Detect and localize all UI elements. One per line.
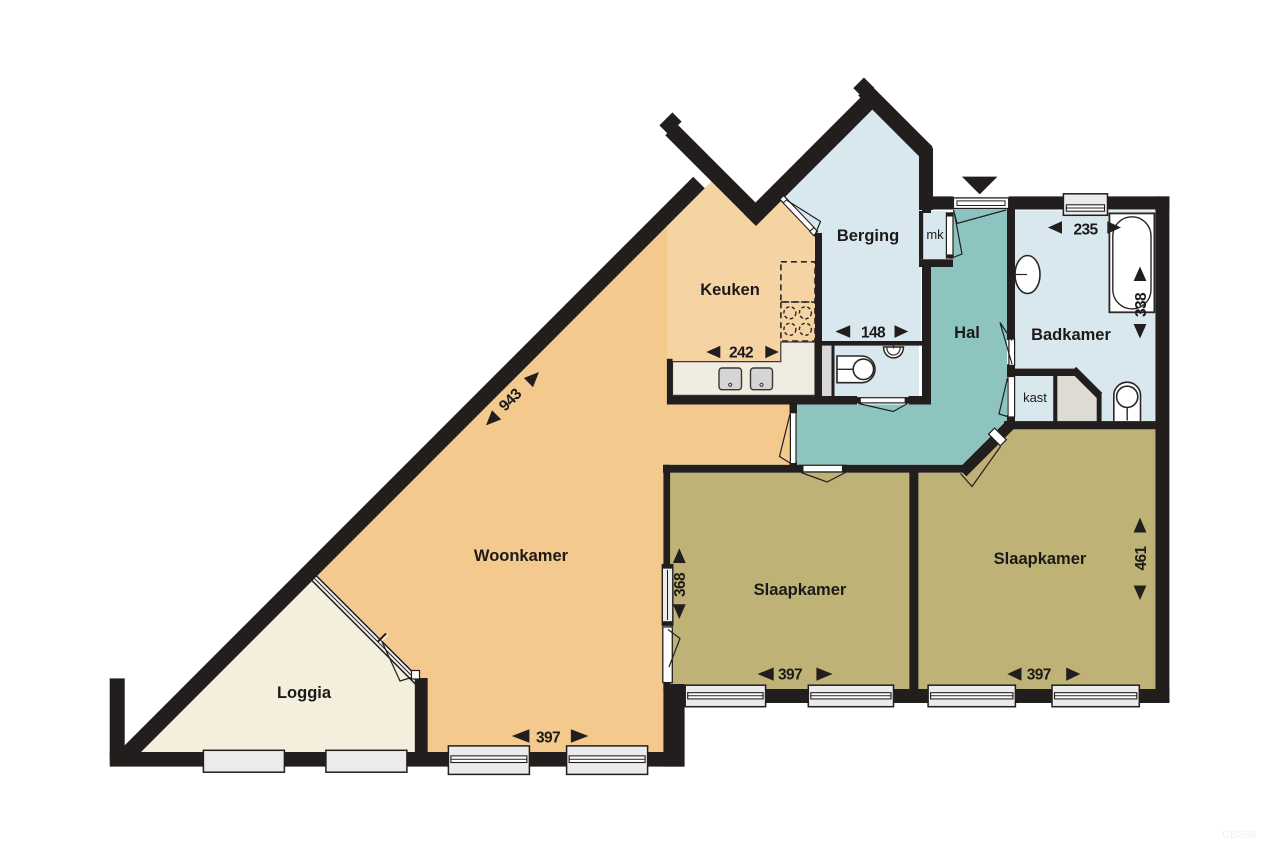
svg-text:Woonkamer: Woonkamer [474,547,569,565]
svg-text:Hal: Hal [954,324,980,342]
svg-text:Keuken: Keuken [700,281,760,299]
svg-text:CB398: CB398 [1222,829,1256,841]
svg-text:461: 461 [1133,545,1150,570]
svg-text:397: 397 [536,730,560,747]
svg-text:338: 338 [1133,292,1150,317]
svg-text:Berging: Berging [837,227,899,245]
svg-text:397: 397 [778,667,802,684]
svg-text:Badkamer: Badkamer [1031,326,1111,344]
svg-text:368: 368 [672,572,689,597]
svg-text:Slaapkamer: Slaapkamer [754,581,847,599]
svg-text:148: 148 [861,325,886,342]
svg-text:242: 242 [729,345,753,362]
svg-text:235: 235 [1073,222,1098,239]
svg-text:397: 397 [1027,667,1051,684]
svg-text:Loggia: Loggia [277,684,332,702]
svg-text:mk: mk [926,227,944,242]
svg-text:kast: kast [1023,390,1047,405]
svg-text:Slaapkamer: Slaapkamer [994,550,1087,568]
